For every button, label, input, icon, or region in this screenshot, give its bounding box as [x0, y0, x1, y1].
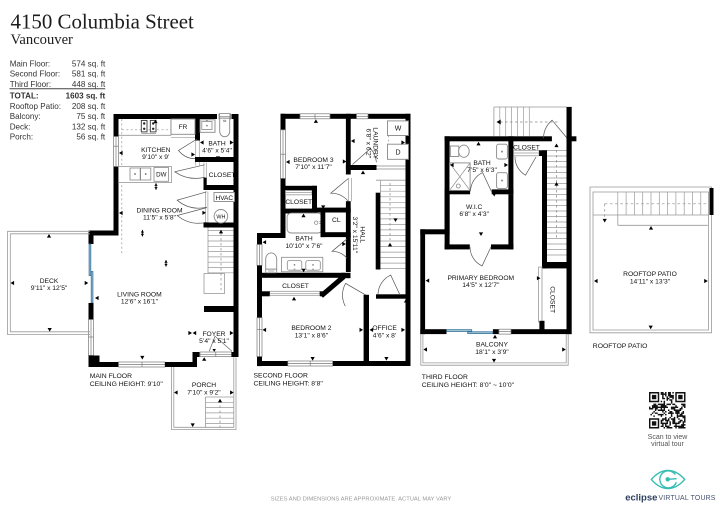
- svg-text:LAUNDRY: LAUNDRY: [372, 127, 379, 159]
- svg-text:4’6" x 8’: 4’6" x 8’: [373, 332, 397, 339]
- svg-text:9’11" x 12’5": 9’11" x 12’5": [31, 285, 68, 292]
- svg-text:18’1" x 3’9": 18’1" x 3’9": [475, 349, 509, 356]
- svg-text:DINING ROOM: DINING ROOM: [136, 207, 182, 214]
- svg-text:13’1" x 8’6": 13’1" x 8’6": [295, 332, 329, 339]
- svg-text:Vancouver: Vancouver: [11, 32, 74, 48]
- svg-text:Porch:: Porch:: [10, 133, 33, 142]
- svg-text:Balcony:: Balcony:: [10, 112, 41, 121]
- svg-text:CLOSET: CLOSET: [282, 283, 309, 290]
- svg-text:CLOSET: CLOSET: [209, 172, 236, 179]
- svg-text:CLOSET: CLOSET: [513, 144, 540, 151]
- svg-text:Third Floor:: Third Floor:: [10, 80, 51, 89]
- svg-text:SIZES AND DIMENSIONS ARE APPRO: SIZES AND DIMENSIONS ARE APPROXIMATE. AC…: [271, 496, 452, 502]
- svg-text:WH: WH: [216, 214, 225, 220]
- svg-text:HVAC: HVAC: [216, 195, 234, 202]
- svg-text:75 sq. ft: 75 sq. ft: [76, 112, 106, 121]
- svg-text:TOTAL:: TOTAL:: [10, 92, 39, 101]
- svg-text:virtual tour: virtual tour: [651, 441, 684, 448]
- svg-text:7’5" x 6’3": 7’5" x 6’3": [467, 167, 497, 174]
- svg-text:14’11" x 13’3": 14’11" x 13’3": [630, 278, 671, 285]
- svg-text:PRIMARY BEDROOM: PRIMARY BEDROOM: [447, 275, 514, 282]
- svg-text:Main Floor:: Main Floor:: [10, 60, 50, 69]
- svg-text:574 sq. ft: 574 sq. ft: [72, 60, 106, 69]
- svg-text:208 sq. ft: 208 sq. ft: [72, 102, 106, 111]
- svg-text:VIRTUAL TOURS: VIRTUAL TOURS: [659, 495, 716, 502]
- svg-text:DW: DW: [156, 172, 166, 179]
- svg-text:132 sq. ft: 132 sq. ft: [72, 122, 106, 131]
- svg-text:PORCH: PORCH: [192, 382, 216, 389]
- svg-text:448 sq. ft: 448 sq. ft: [72, 80, 106, 89]
- svg-text:HALL: HALL: [358, 226, 365, 243]
- svg-text:6’8" x 4’3": 6’8" x 4’3": [459, 211, 489, 218]
- svg-text:ROOFTOP PATIO: ROOFTOP PATIO: [623, 271, 677, 278]
- svg-text:BATH: BATH: [473, 160, 491, 167]
- svg-text:10’10" x 7’6": 10’10" x 7’6": [285, 243, 323, 250]
- svg-text:3’2" x 15’11": 3’2" x 15’11": [351, 216, 358, 253]
- svg-text:OFFICE: OFFICE: [372, 325, 397, 332]
- svg-text:6’8" x 6’2": 6’8" x 6’2": [365, 128, 372, 158]
- svg-text:CEILING HEIGHT: 8’0" ~ 10’0": CEILING HEIGHT: 8’0" ~ 10’0": [422, 382, 515, 389]
- svg-text:KITCHEN: KITCHEN: [141, 147, 171, 154]
- svg-text:CL: CL: [332, 217, 341, 224]
- svg-text:CEILING HEIGHT: 9’10": CEILING HEIGHT: 9’10": [90, 381, 164, 388]
- svg-text:LIVING ROOM: LIVING ROOM: [117, 291, 162, 298]
- svg-text:D: D: [395, 149, 400, 156]
- svg-text:CEILING HEIGHT: 8’8": CEILING HEIGHT: 8’8": [254, 380, 324, 387]
- svg-text:W: W: [395, 126, 402, 133]
- svg-text:11’5" x 5’8": 11’5" x 5’8": [143, 215, 177, 222]
- svg-text:56 sq. ft: 56 sq. ft: [76, 133, 106, 142]
- svg-text:W.I.C: W.I.C: [466, 204, 483, 211]
- svg-text:7’10" x 11’7": 7’10" x 11’7": [295, 164, 332, 171]
- svg-text:DECK: DECK: [40, 278, 59, 285]
- svg-text:BATH: BATH: [295, 236, 313, 243]
- svg-text:BEDROOM 3: BEDROOM 3: [293, 157, 333, 164]
- svg-text:7’10" x 9’2": 7’10" x 9’2": [187, 389, 221, 396]
- svg-text:Scan to view: Scan to view: [648, 434, 689, 441]
- svg-text:12’6" x 16’1": 12’6" x 16’1": [121, 299, 159, 306]
- svg-text:Rooftop Patio:: Rooftop Patio:: [10, 102, 61, 111]
- svg-text:MAIN FLOOR: MAIN FLOOR: [90, 373, 132, 380]
- svg-text:Second Floor:: Second Floor:: [10, 70, 60, 79]
- svg-text:eclipse: eclipse: [625, 492, 657, 503]
- svg-text:ROOFTOP PATIO: ROOFTOP PATIO: [593, 343, 648, 350]
- svg-text:1603 sq. ft: 1603 sq. ft: [66, 92, 106, 101]
- svg-text:9’10" x 9’: 9’10" x 9’: [142, 154, 170, 161]
- svg-text:FOYER: FOYER: [202, 331, 225, 338]
- svg-text:CLOSET: CLOSET: [285, 199, 312, 206]
- svg-text:4150 Columbia Street: 4150 Columbia Street: [11, 10, 195, 34]
- svg-text:BEDROOM 2: BEDROOM 2: [291, 325, 331, 332]
- svg-text:Deck:: Deck:: [10, 122, 31, 131]
- svg-text:CLOSET: CLOSET: [548, 286, 555, 313]
- svg-text:FR: FR: [179, 124, 188, 131]
- svg-text:BALCONY: BALCONY: [476, 342, 509, 349]
- svg-text:BATH: BATH: [208, 140, 226, 147]
- svg-text:581 sq. ft: 581 sq. ft: [72, 70, 106, 79]
- svg-text:14’5" x 12’7": 14’5" x 12’7": [462, 282, 500, 289]
- svg-text:THIRD FLOOR: THIRD FLOOR: [422, 374, 468, 381]
- svg-text:4’6" x 5’4": 4’6" x 5’4": [202, 148, 232, 155]
- svg-text:5’4" x 5’1": 5’4" x 5’1": [199, 338, 229, 345]
- svg-text:SECOND FLOOR: SECOND FLOOR: [254, 372, 308, 379]
